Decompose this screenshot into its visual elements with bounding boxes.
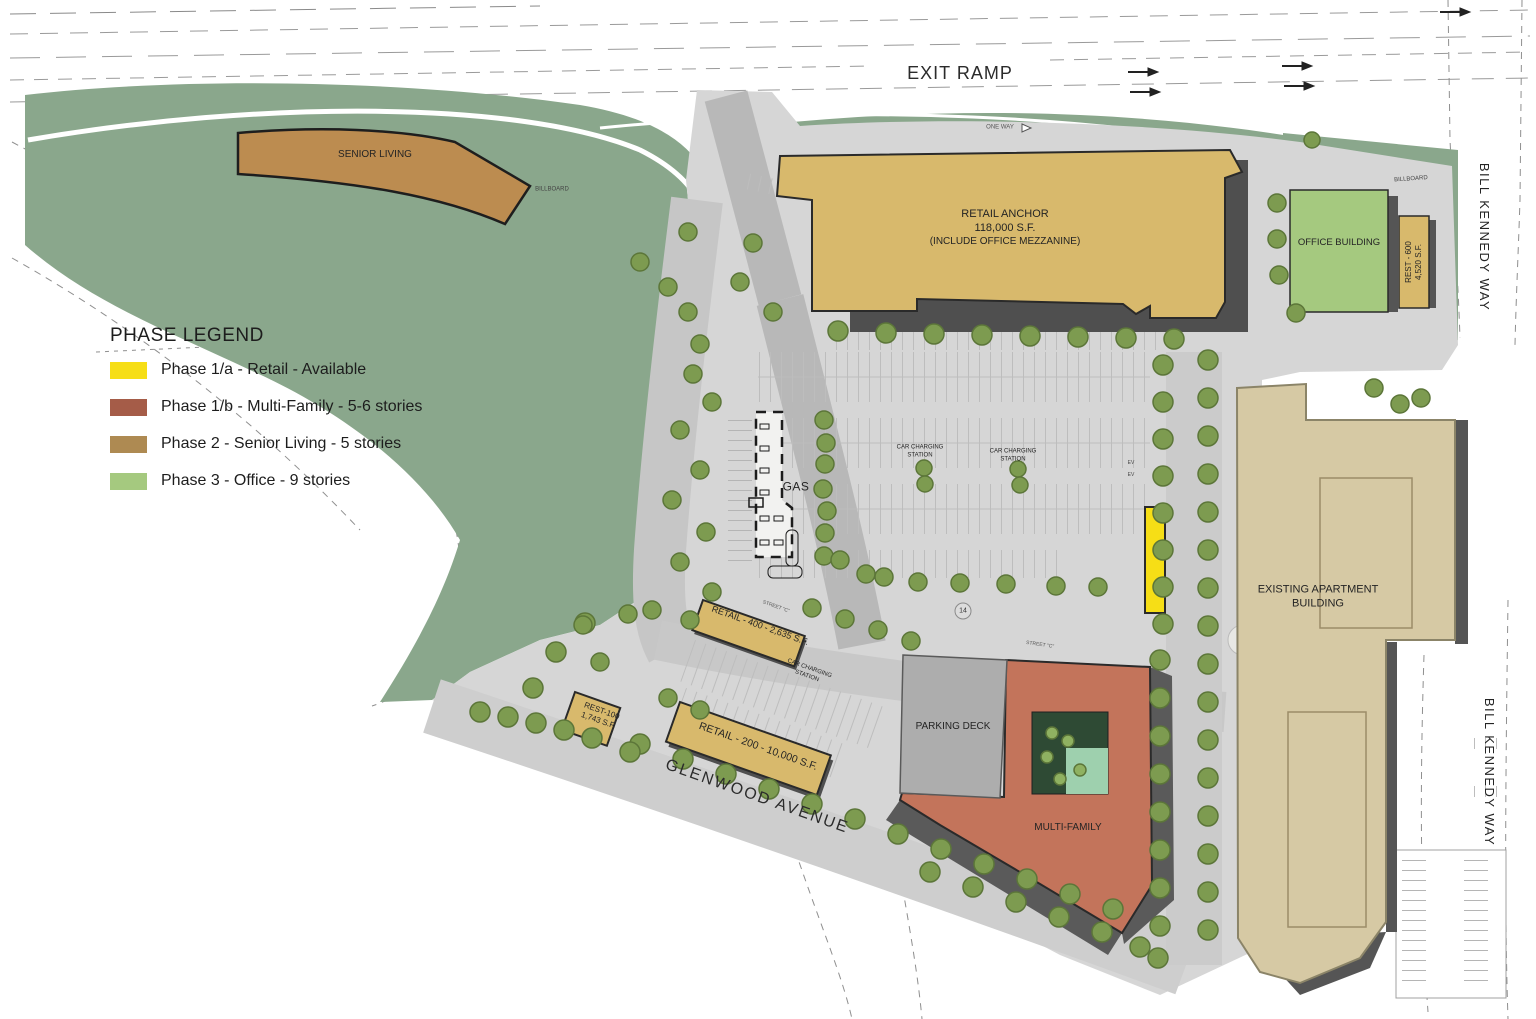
- gas-label: GAS: [783, 480, 810, 495]
- legend-item-phase-3: Phase 3 - Office - 9 stories: [110, 472, 422, 490]
- parking-deck-label: PARKING DECK: [916, 721, 991, 734]
- site-plan: EXIT RAMP ONE WAY SENIOR LIVING BILLBOAR…: [0, 0, 1536, 1019]
- legend-swatch-phase-1a: [110, 362, 147, 379]
- legend-label: Phase 1/a - Retail - Available: [161, 361, 366, 379]
- phase-legend: PHASE LEGEND Phase 1/a - Retail - Availa…: [110, 325, 422, 509]
- retail-anchor-label: RETAIL ANCHOR 118,000 S.F. (INCLUDE OFFI…: [930, 208, 1081, 248]
- one-way-label: ONE WAY: [986, 124, 1014, 132]
- rest-600-label: REST - 600 4,520 S.F.: [1404, 241, 1424, 283]
- legend-item-phase-1a: Phase 1/a - Retail - Available: [110, 361, 422, 379]
- legend-swatch-phase-2: [110, 436, 147, 453]
- office-building-label: OFFICE BUILDING: [1298, 237, 1380, 249]
- site-plan-drawing: [0, 0, 1536, 1019]
- senior-living-label: SENIOR LIVING: [338, 149, 412, 162]
- building-office: [1290, 190, 1398, 312]
- ev-label-1: EV: [1128, 460, 1135, 466]
- legend-title: PHASE LEGEND: [110, 325, 422, 347]
- legend-swatch-phase-1b: [110, 399, 147, 416]
- multi-family-label: MULTI-FAMILY: [1034, 822, 1101, 835]
- legend-item-phase-2: Phase 2 - Senior Living - 5 stories: [110, 435, 422, 453]
- traffic-arrow-icons: [1128, 8, 1470, 96]
- legend-label: Phase 1/b - Multi-Family - 5-6 stories: [161, 398, 422, 416]
- legend-swatch-phase-3: [110, 473, 147, 490]
- car-charging-label-1: CAR CHARGING STATION: [897, 445, 944, 460]
- existing-apartment-label: EXISTING APARTMENT BUILDING: [1258, 583, 1379, 611]
- ev-label-2: EV: [1128, 472, 1135, 478]
- bill-kennedy-way-label-bottom: BILL KENNEDY WAY: [1481, 698, 1497, 846]
- legend-item-phase-1b: Phase 1/b - Multi-Family - 5-6 stories: [110, 398, 422, 416]
- legend-label: Phase 3 - Office - 9 stories: [161, 472, 350, 490]
- bill-kennedy-way-label-top: BILL KENNEDY WAY: [1476, 163, 1492, 311]
- stall-count-badge: 14: [955, 603, 972, 620]
- legend-label: Phase 2 - Senior Living - 5 stories: [161, 435, 401, 453]
- car-charging-label-2: CAR CHARGING STATION: [990, 449, 1037, 464]
- exit-ramp-label: EXIT RAMP: [907, 62, 1013, 85]
- billboard-label-left: BILLBOARD: [535, 186, 569, 194]
